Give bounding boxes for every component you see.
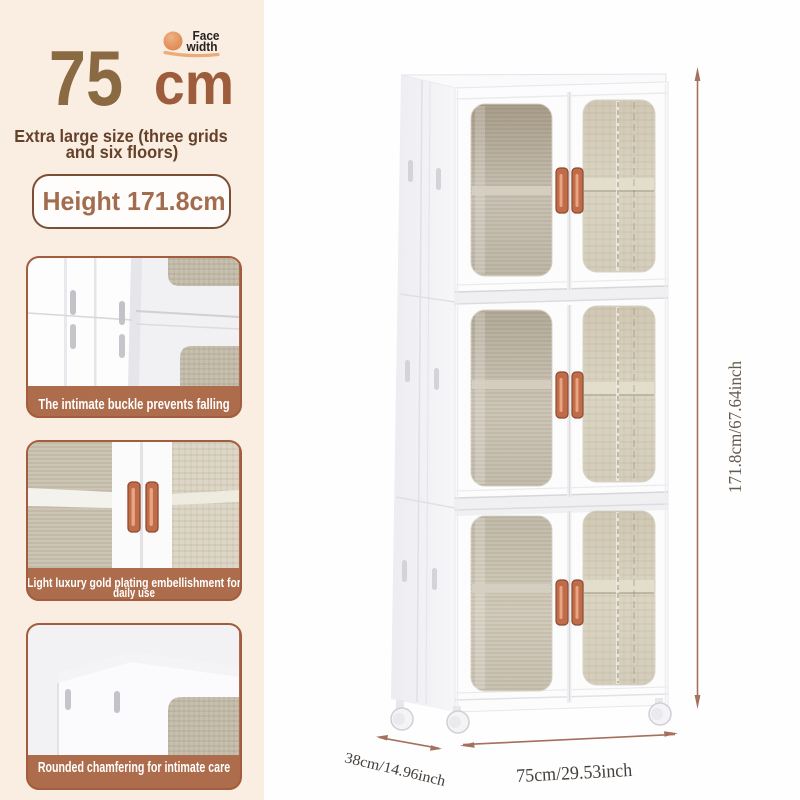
svg-text:75cm/29.53inch: 75cm/29.53inch bbox=[516, 760, 633, 787]
svg-text:38cm/14.96inch: 38cm/14.96inch bbox=[343, 750, 447, 790]
svg-text:171.8cm/67.64inch: 171.8cm/67.64inch bbox=[725, 361, 745, 493]
